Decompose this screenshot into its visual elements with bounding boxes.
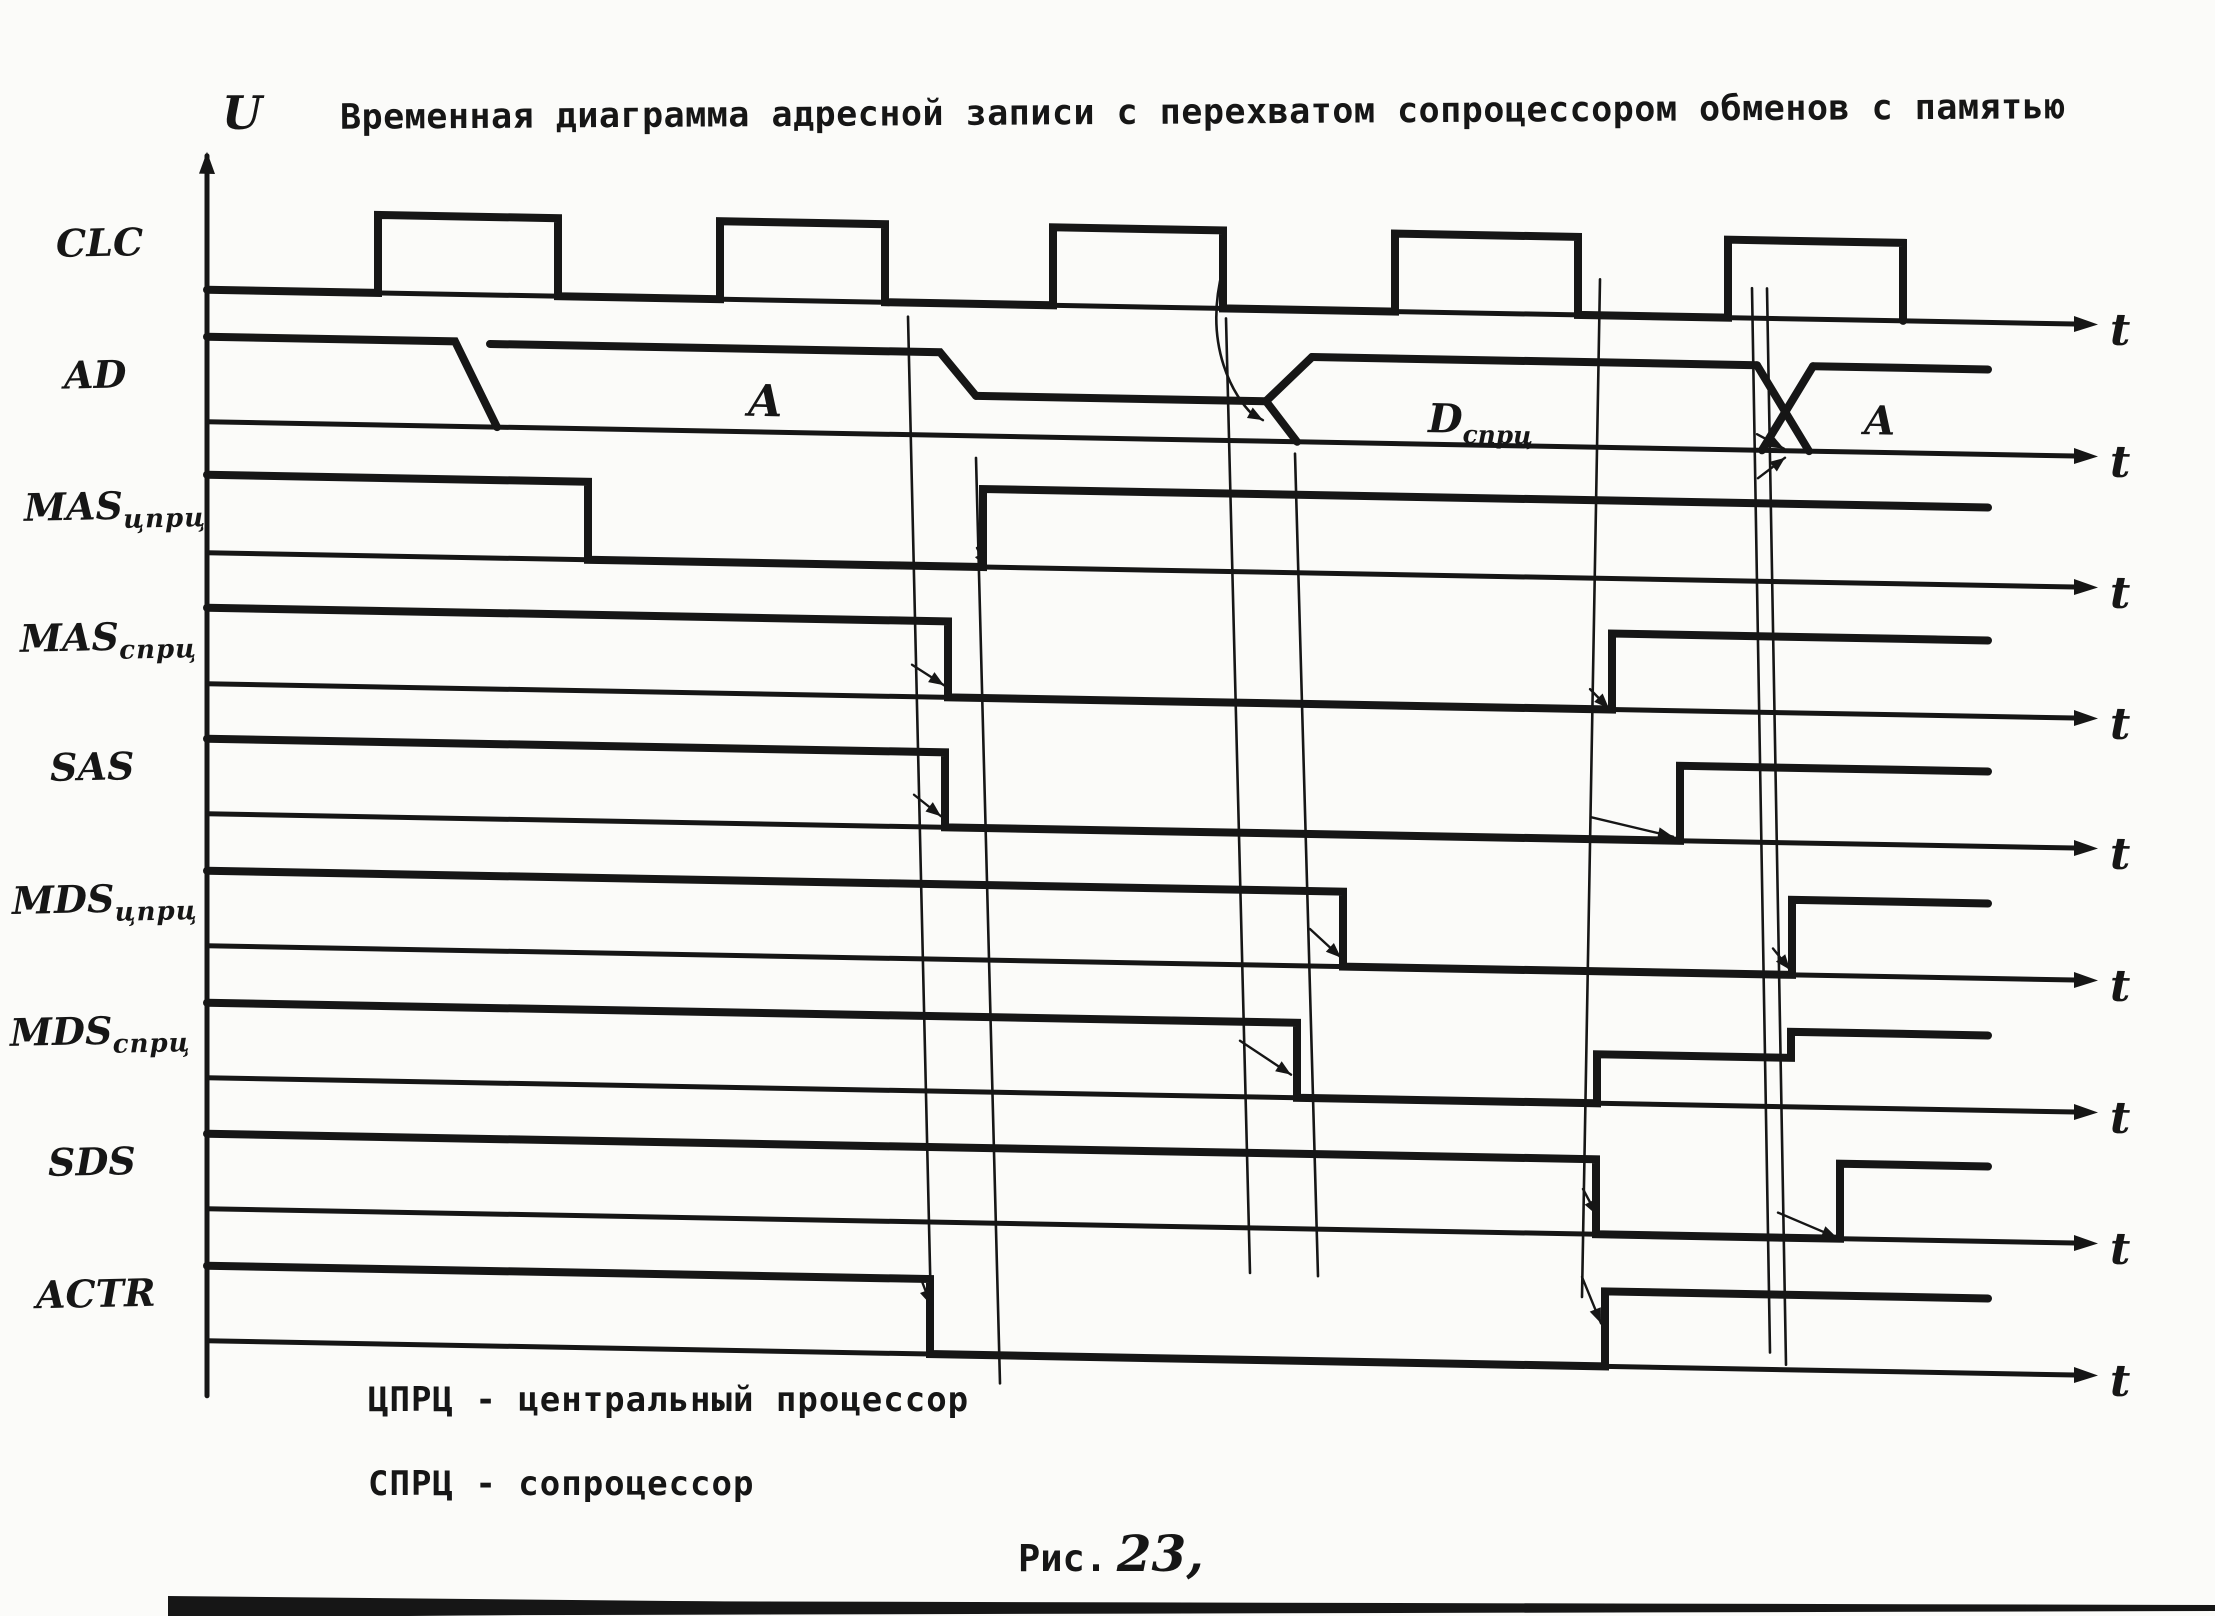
waveforms-group: ttADспрцAttttttt (199, 152, 2130, 1431)
bus-wave-AD (1266, 356, 1312, 402)
figure-caption-prefix: Рис. (1018, 1537, 1107, 1580)
t-axis-CLC (207, 290, 2082, 324)
t-axis-MAS (207, 553, 2082, 587)
scan-edge-strip (168, 1596, 770, 1616)
causality-line (1582, 279, 1600, 1297)
t-axis-MDS (207, 1078, 2082, 1112)
scan-artifacts (168, 1596, 2215, 1616)
t-axis-MDS (207, 946, 2082, 980)
t-axis-arrowhead-icon (2074, 1235, 2098, 1251)
signal-label-MAS-спрц: MASспрц (19, 612, 197, 668)
bus-wave-AD (490, 344, 976, 396)
clock-wave-CLC (207, 212, 1903, 321)
causality-arrowhead-icon (920, 1289, 931, 1305)
u-axis-arrowhead-icon (199, 152, 215, 174)
bus-wave-AD (1312, 357, 1757, 365)
causality-arrowhead-icon (928, 672, 944, 685)
t-axis-label: t (2110, 961, 2130, 1012)
scanned-page: Временная диаграмма адресной записи с пе… (0, 0, 2215, 1616)
timing-diagram: ttADспрцAttttttt (0, 0, 2215, 1616)
causality-line (976, 458, 1000, 1383)
t-axis-arrowhead-icon (2074, 1367, 2098, 1383)
t-axis-label: t (2110, 568, 2130, 619)
level-wave-MAS (207, 608, 1988, 717)
signal-label-MDS-цпрц: MDSцпрц (11, 874, 197, 930)
signal-label-MAS-цпрц: MASцпрц (23, 481, 206, 537)
bus-wave-AD (207, 337, 497, 427)
level-wave-ACTR (207, 1266, 1988, 1374)
signal-label-MDS-спрц: MDSспрц (9, 1006, 190, 1062)
t-axis-arrowhead-icon (2074, 972, 2098, 988)
t-axis-arrowhead-icon (2074, 579, 2098, 595)
causality-arrowhead-icon (1275, 1061, 1291, 1074)
figure-caption: Рис. 23, (1018, 1524, 1204, 1583)
t-axis-arrowhead-icon (2074, 710, 2098, 726)
t-axis-label: t (2110, 1224, 2130, 1275)
t-axis-label: t (2110, 699, 2130, 750)
signal-label-ACTR: ACTR (36, 1270, 157, 1317)
causality-line (908, 317, 932, 1354)
causality-arrowhead-icon (1821, 1226, 1837, 1238)
figure-caption-number: 23, (1117, 1524, 1204, 1583)
bus-value-label: Dспрц (1427, 395, 1533, 450)
t-axis-label: t (2110, 1356, 2130, 1407)
t-axis-arrowhead-icon (2074, 1104, 2098, 1120)
causality-arrowhead-icon (1769, 457, 1785, 471)
t-axis-label: t (2110, 305, 2130, 356)
bus-wave-AD (976, 396, 1266, 401)
signal-label-CLC: CLC (56, 219, 144, 266)
legend-line-sprc: СПРЦ - сопроцессор (368, 1464, 754, 1504)
t-axis-label: t (2110, 1093, 2130, 1144)
bus-wave-AD (1266, 401, 1297, 442)
signal-label-AD: AD (64, 351, 127, 397)
t-axis-arrowhead-icon (2074, 840, 2098, 856)
t-axis-arrowhead-icon (2074, 448, 2098, 464)
level-wave-SAS (207, 739, 1988, 847)
t-axis-label: t (2110, 829, 2130, 880)
t-axis-arrowhead-icon (2074, 316, 2098, 332)
causality-line (1226, 318, 1250, 1272)
t-axis-label: t (2110, 437, 2130, 488)
causality-arrowhead-icon (1590, 1307, 1601, 1323)
signal-label-SDS: SDS (48, 1138, 137, 1185)
bus-wave-AD (1813, 366, 1988, 369)
bus-value-label: A (744, 376, 782, 428)
signal-label-SAS: SAS (50, 743, 135, 790)
bus-value-label: A (1860, 397, 1895, 445)
legend-line-cprc: ЦПРЦ - центральный процессор (368, 1380, 969, 1420)
causality-arrowhead-icon (925, 802, 941, 816)
causality-arrowhead-icon (1247, 407, 1263, 420)
